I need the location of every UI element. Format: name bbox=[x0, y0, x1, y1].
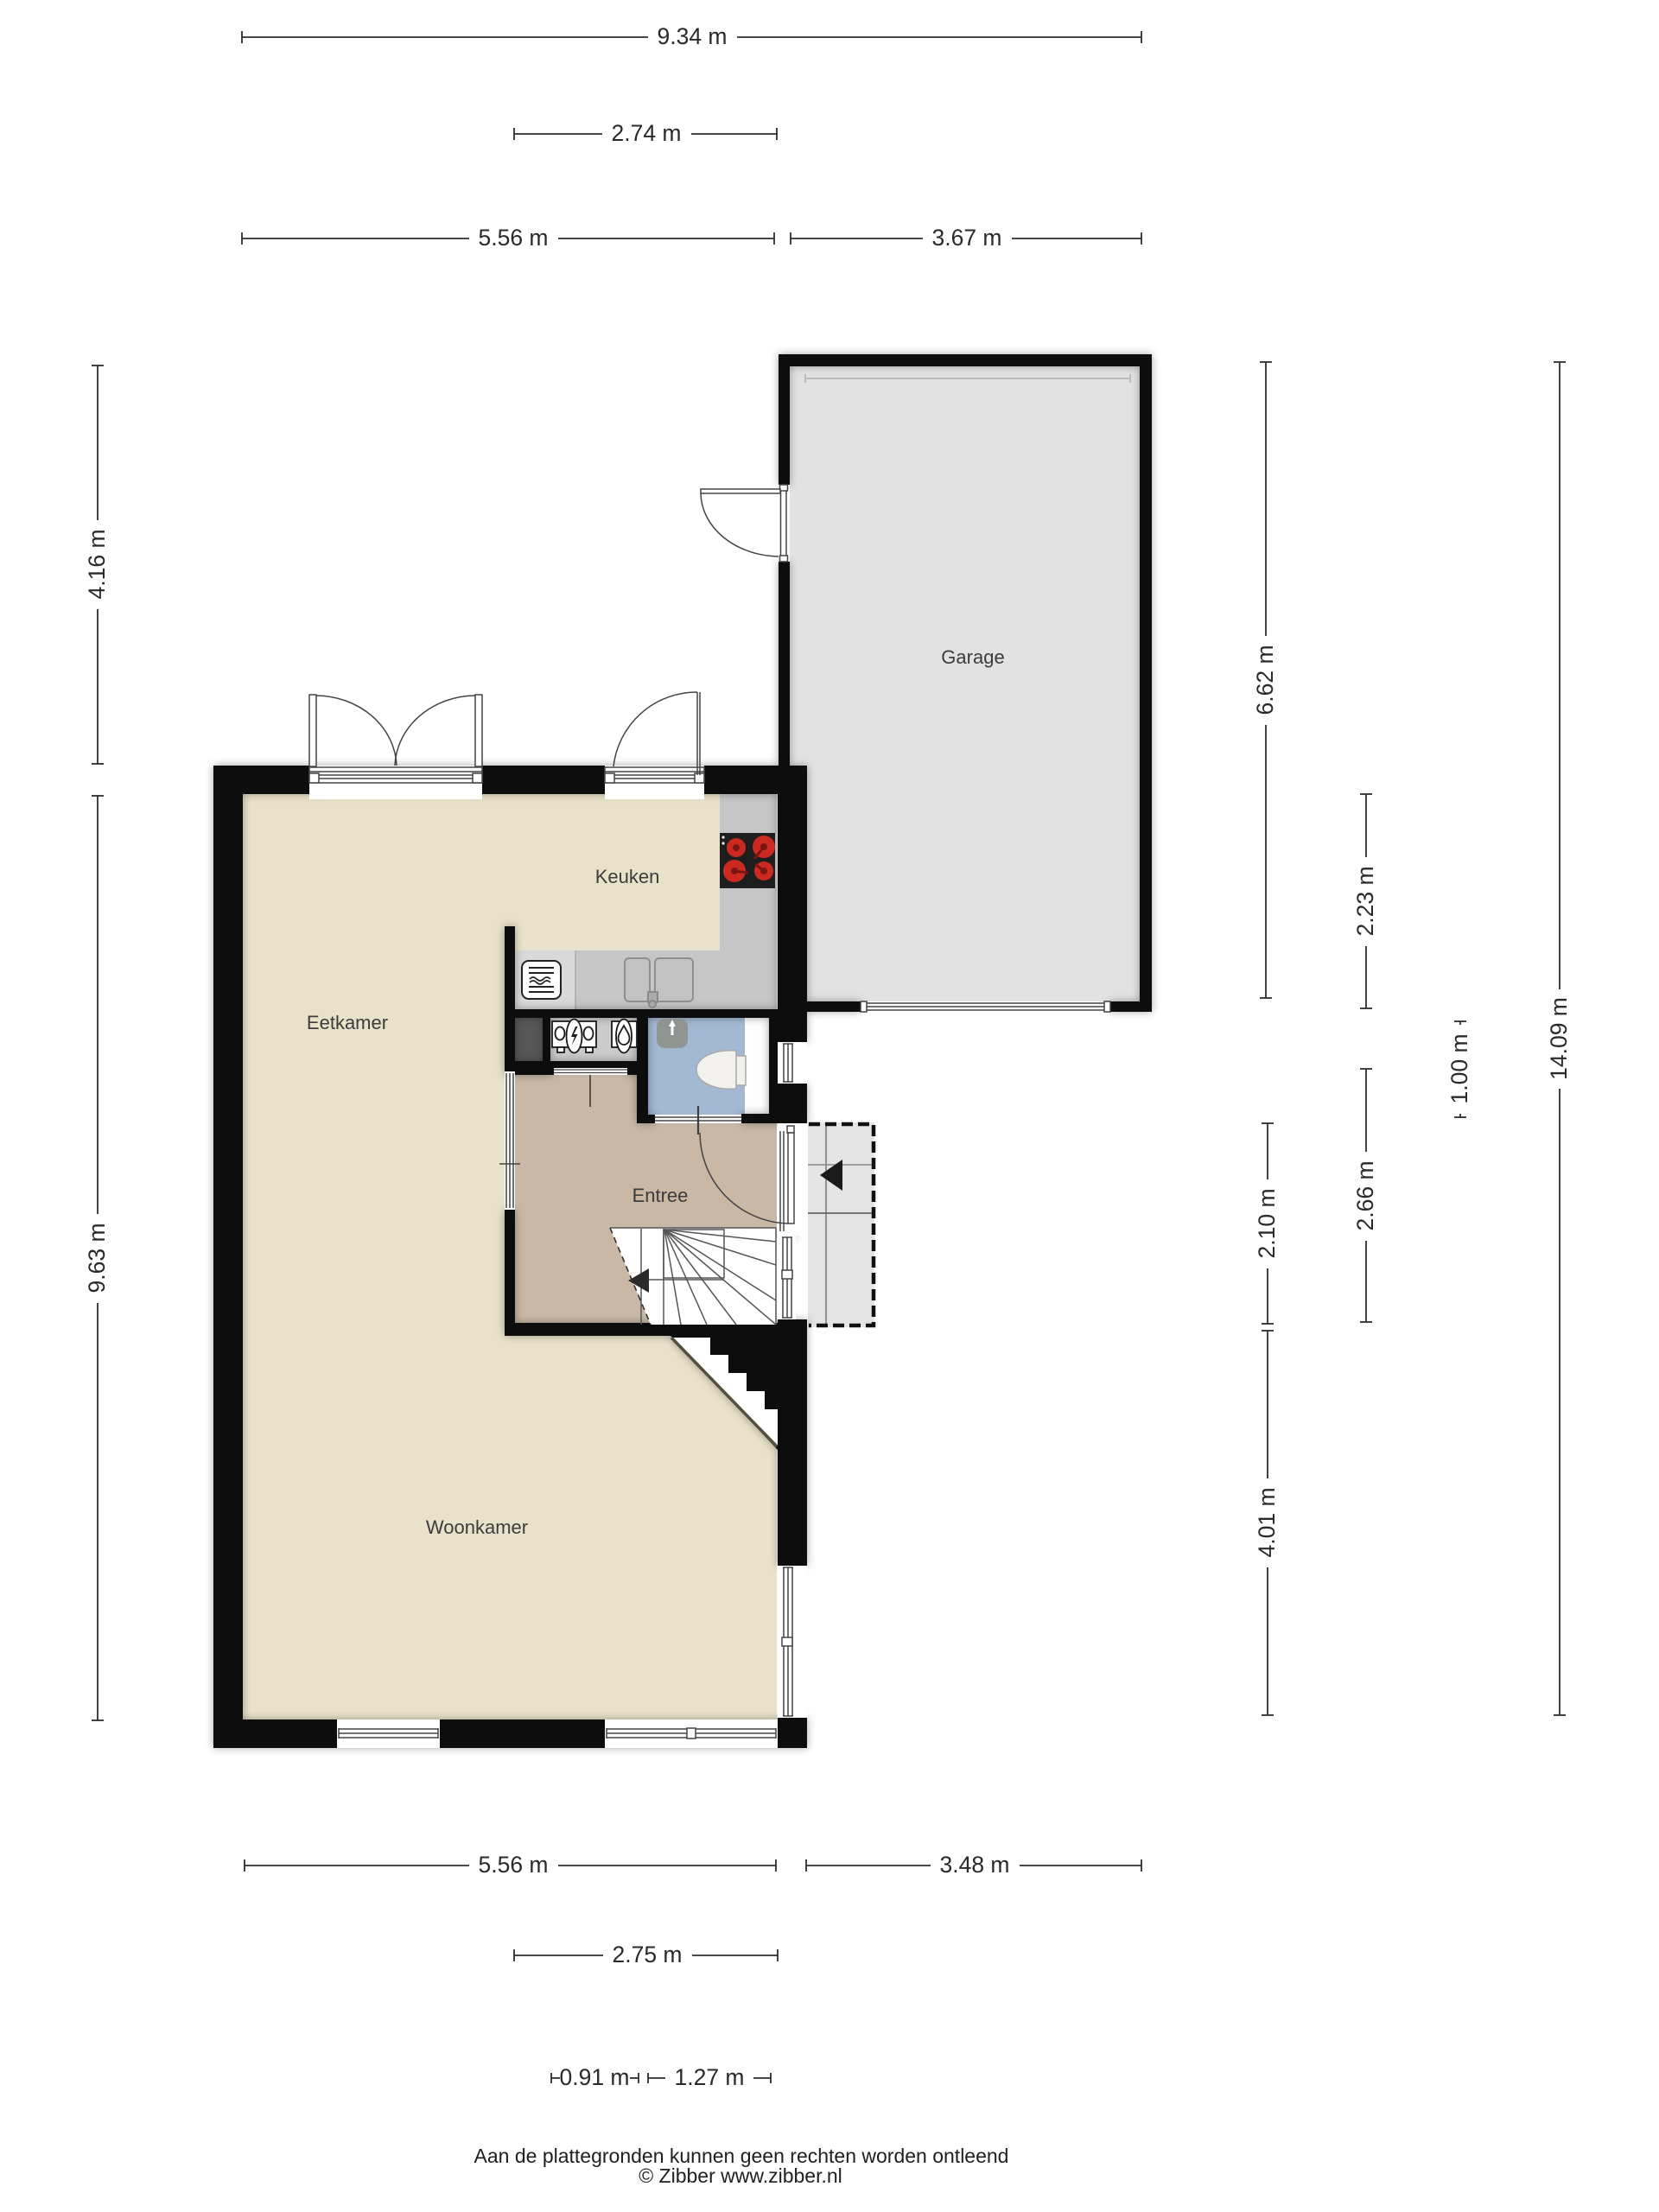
svg-text:9.63 m: 9.63 m bbox=[84, 1223, 110, 1293]
svg-text:4.01 m: 4.01 m bbox=[1254, 1487, 1280, 1557]
svg-text:1.27 m: 1.27 m bbox=[674, 2064, 744, 2090]
svg-text:1.00 m: 1.00 m bbox=[1446, 1033, 1472, 1103]
svg-text:5.56 m: 5.56 m bbox=[478, 1852, 548, 1878]
svg-text:6.62 m: 6.62 m bbox=[1252, 645, 1278, 715]
svg-text:Eetkamer: Eetkamer bbox=[307, 1012, 388, 1033]
svg-text:9.34 m: 9.34 m bbox=[657, 23, 727, 49]
svg-text:2.66 m: 2.66 m bbox=[1352, 1160, 1378, 1230]
svg-text:2.10 m: 2.10 m bbox=[1254, 1188, 1280, 1258]
svg-text:Keuken: Keuken bbox=[595, 866, 660, 887]
svg-text:© Zibber www.zibber.nl: © Zibber www.zibber.nl bbox=[639, 2164, 842, 2187]
svg-text:2.75 m: 2.75 m bbox=[612, 1942, 682, 1967]
svg-text:3.48 m: 3.48 m bbox=[939, 1852, 1009, 1878]
svg-text:Entree: Entree bbox=[632, 1185, 689, 1206]
svg-text:4.16 m: 4.16 m bbox=[84, 529, 110, 599]
svg-text:Garage: Garage bbox=[941, 646, 1004, 668]
svg-text:2.23 m: 2.23 m bbox=[1352, 866, 1378, 936]
svg-text:5.56 m: 5.56 m bbox=[478, 225, 548, 251]
svg-text:2.74 m: 2.74 m bbox=[611, 120, 681, 146]
svg-text:0.91 m: 0.91 m bbox=[559, 2064, 629, 2090]
svg-text:14.09 m: 14.09 m bbox=[1546, 997, 1572, 1080]
svg-text:3.67 m: 3.67 m bbox=[931, 225, 1001, 251]
svg-text:Woonkamer: Woonkamer bbox=[426, 1516, 528, 1538]
